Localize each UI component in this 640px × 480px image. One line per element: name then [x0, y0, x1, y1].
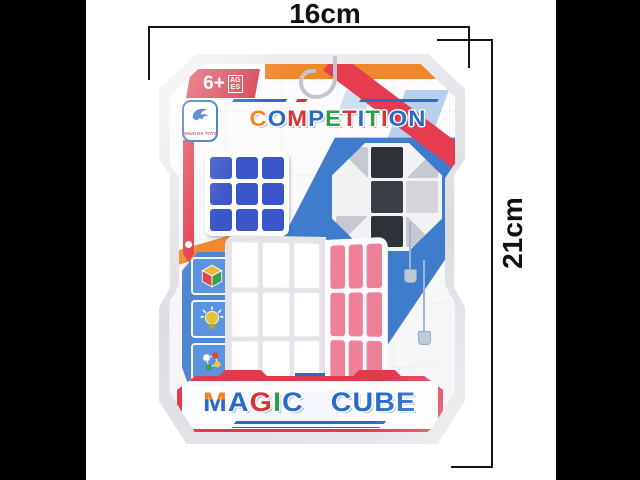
underline-decoration [234, 421, 387, 424]
height-dimension-tick-bottom [451, 466, 493, 468]
product-name-frame: MAGIC CUBE [177, 376, 443, 432]
hanging-ornament [409, 222, 411, 270]
red-left-stripe [183, 140, 194, 262]
blister-package: 6+ AGES SHUN DA TOYS COMPETITION [159, 54, 465, 444]
age-badge: 6+ AGES [186, 69, 260, 98]
big-cube-pink-face [325, 237, 388, 393]
big-cube-toy [226, 237, 392, 392]
width-dimension-label: 16cm [275, 0, 375, 30]
height-dimension-label: 21cm [497, 193, 527, 273]
product-name-word-cube: CUBE [331, 387, 416, 417]
product-name-word-magic: MAGIC [203, 387, 304, 417]
hang-hook-cutout [295, 56, 343, 122]
width-dimension-tick-left [148, 26, 150, 80]
height-dimension-tick-top [437, 39, 493, 41]
height-dimension-line [491, 39, 493, 468]
product-name: MAGIC CUBE [203, 387, 416, 424]
right-black-bar [556, 0, 640, 480]
brand-logo: SHUN DA TOYS [182, 100, 218, 142]
left-black-bar [0, 0, 86, 480]
hanging-ornament [423, 260, 425, 332]
age-text: AGES [228, 75, 243, 93]
stripe-dot [185, 241, 192, 248]
brand-swirl-icon [189, 106, 211, 131]
small-cube-toy [205, 152, 289, 236]
age-number: 6+ [203, 73, 225, 95]
brand-name: SHUN DA TOYS [183, 131, 217, 136]
word-space [313, 387, 322, 417]
width-dimension-tick-right [468, 26, 470, 68]
product-photo: 16cm 21cm 6+ AGES SHUN DA TOYS [0, 0, 640, 480]
